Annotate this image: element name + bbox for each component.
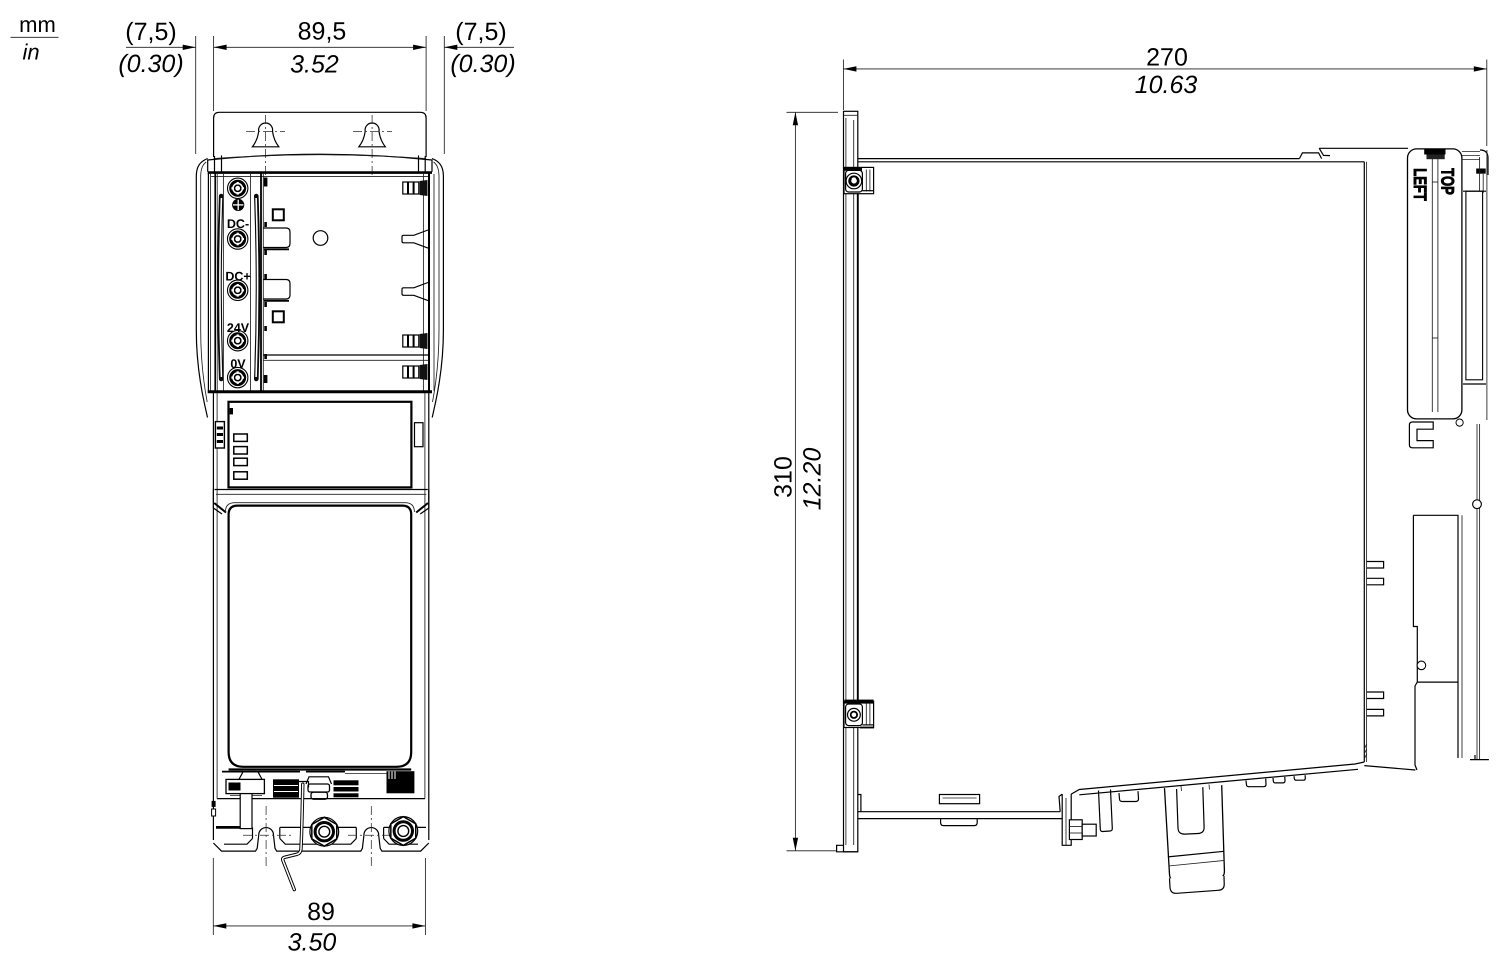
svg-text:0V: 0V — [230, 357, 246, 371]
svg-text:12.20: 12.20 — [799, 448, 827, 511]
svg-text:24V: 24V — [227, 321, 250, 335]
svg-text:(7,5): (7,5) — [125, 18, 176, 46]
svg-text:LEFT: LEFT — [1410, 168, 1430, 201]
svg-text:3.50: 3.50 — [288, 929, 337, 957]
svg-text:DC+: DC+ — [225, 270, 250, 284]
svg-text:310: 310 — [770, 456, 798, 498]
svg-text:(0.30): (0.30) — [450, 50, 515, 78]
svg-text:270: 270 — [1146, 44, 1188, 72]
svg-text:(0.30): (0.30) — [118, 50, 183, 78]
svg-text:(7,5): (7,5) — [455, 18, 506, 46]
svg-text:10.63: 10.63 — [1135, 71, 1198, 99]
svg-text:3.52: 3.52 — [290, 51, 339, 79]
svg-text:TOP: TOP — [1438, 168, 1458, 195]
svg-text:DC-: DC- — [227, 217, 249, 231]
svg-text:89,5: 89,5 — [298, 18, 347, 46]
svg-text:in: in — [22, 40, 39, 65]
svg-text:mm: mm — [19, 12, 56, 37]
svg-text:89: 89 — [307, 898, 335, 926]
